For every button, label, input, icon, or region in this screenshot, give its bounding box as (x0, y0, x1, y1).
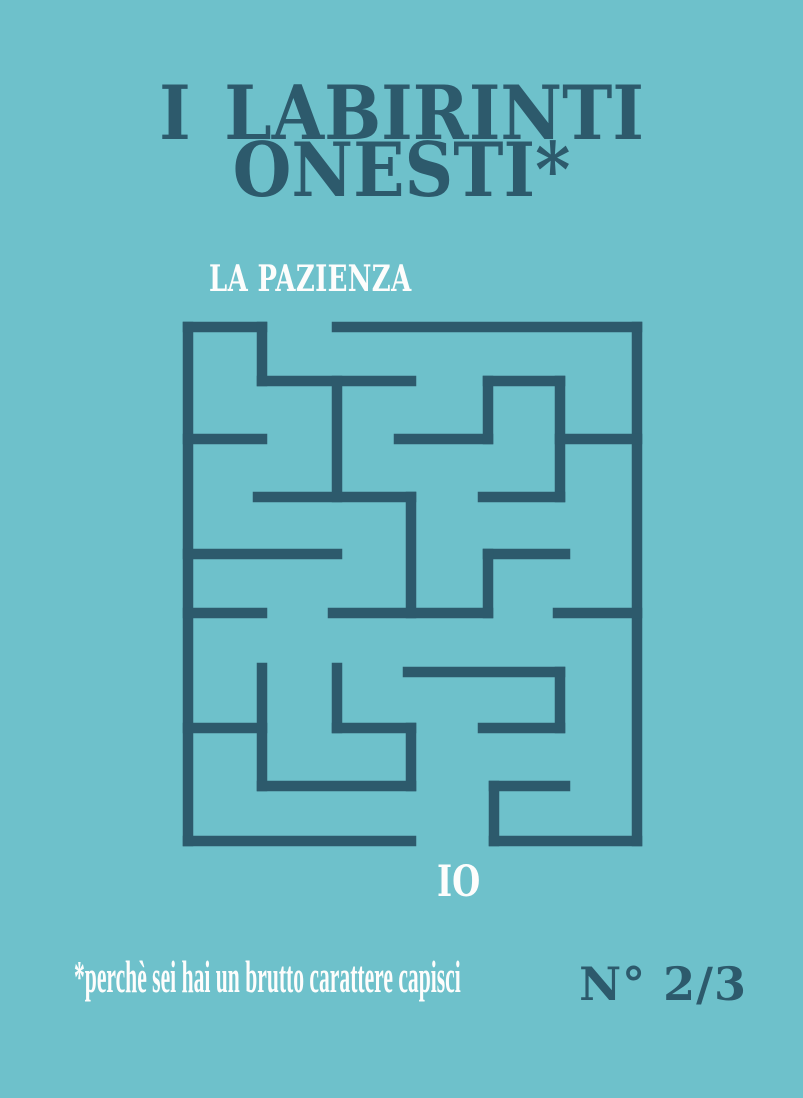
title-line-2: ONESTI* (40, 142, 763, 199)
poster-title: I LABIRINTI ONESTI* (40, 85, 763, 199)
footnote-text: *perchè sei hai un brutto carattere capi… (74, 955, 461, 1000)
poster: I LABIRINTI ONESTI* LA PAZIENZA IO *perc… (0, 0, 803, 1098)
maze-name-label: LA PAZIENZA (209, 261, 412, 297)
edition-number: N° 2/3 (579, 961, 747, 1007)
maze-number-label: IO (437, 861, 480, 904)
